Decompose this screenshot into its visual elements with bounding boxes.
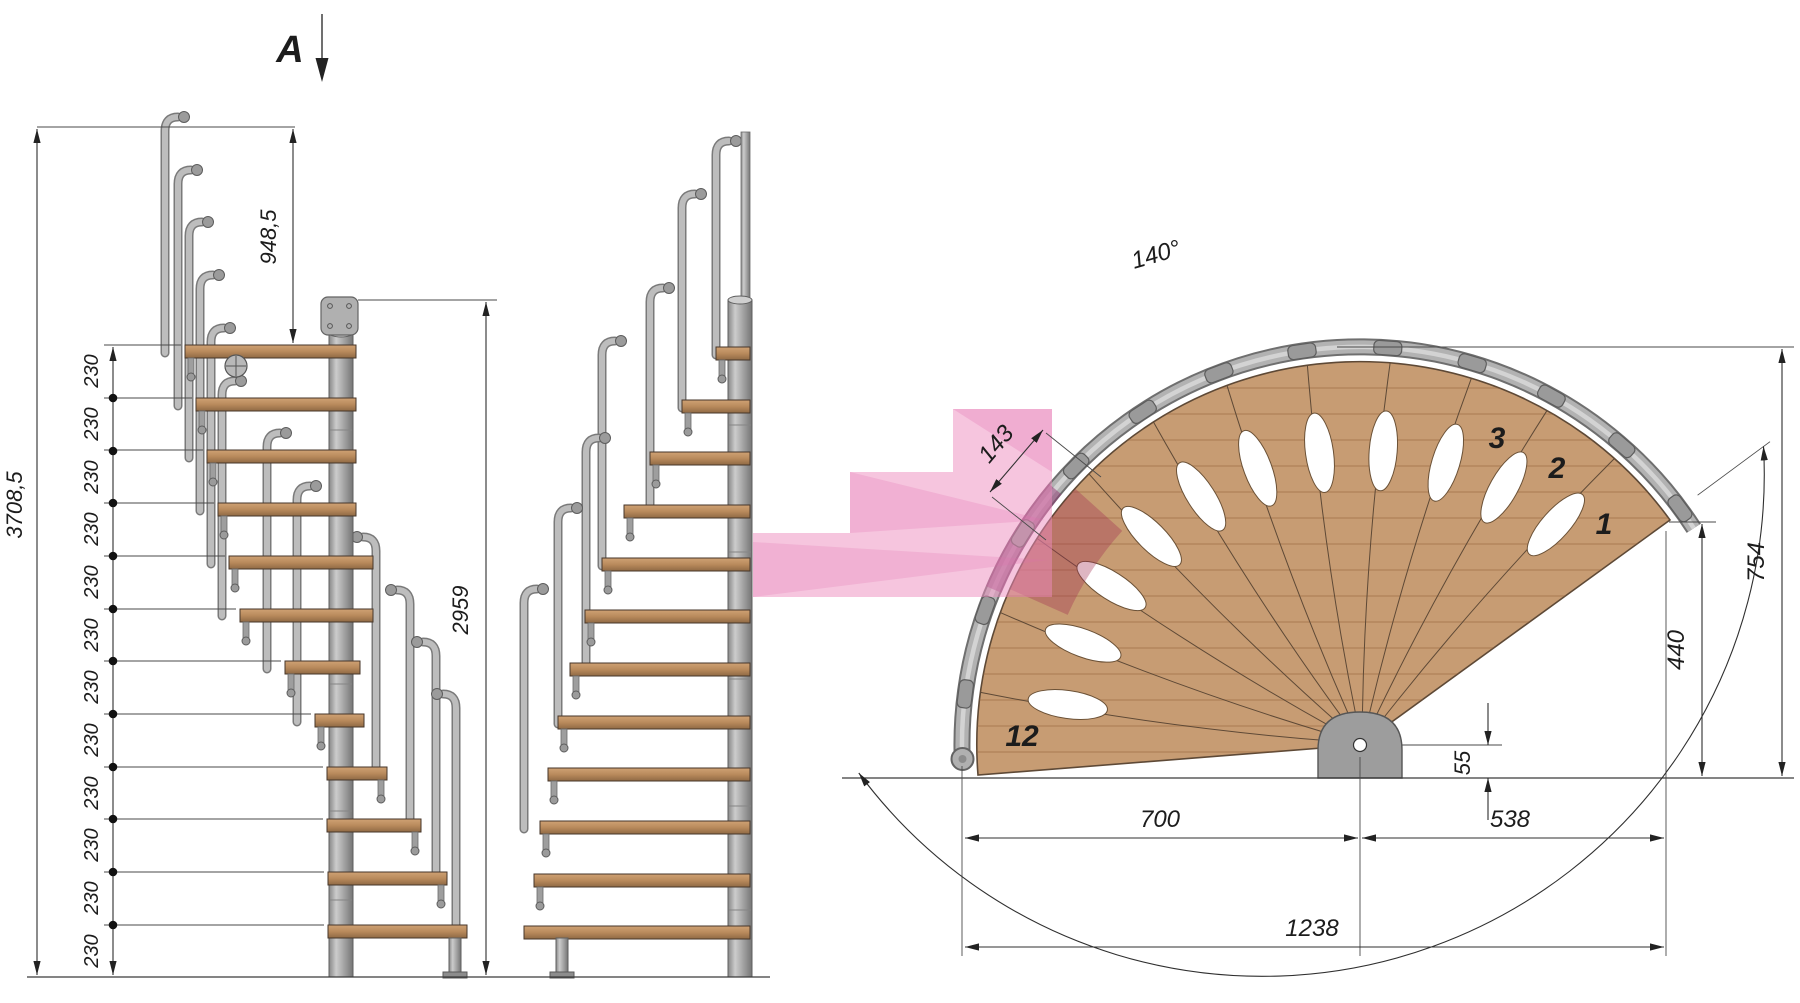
section-arrow-icon (316, 58, 329, 82)
dim-outer-radius: 754 (1743, 349, 1782, 776)
dim-label-700: 700 (1140, 806, 1181, 833)
tread-number-3: 3 (1489, 422, 1506, 455)
left-elevation-view (165, 112, 467, 979)
dim-label-230-1: 230 (81, 354, 103, 388)
dim-label-230-3: 230 (81, 460, 103, 494)
newel-extension-tube (741, 132, 750, 302)
dim-label-2959: 2959 (448, 586, 473, 636)
tread-number-1: 1 (1596, 508, 1613, 541)
dim-label-1238: 1238 (1285, 915, 1339, 942)
dim-total-height: 3708,5 (2, 129, 37, 975)
dim-label-230-5: 230 (81, 565, 103, 599)
dim-bottom-spans: 700 538 1238 (965, 806, 1664, 947)
dim-corner-height: 440 (1663, 524, 1702, 776)
dim-label-230-8: 230 (81, 723, 103, 757)
dim-label-948-5: 948,5 (256, 209, 281, 265)
dim-label-230-2: 230 (81, 407, 103, 441)
elevation-dimensions: 3708,5 948,5 230 230 230 230 230 230 230… (2, 127, 770, 977)
handrail-end-cap-center (959, 755, 967, 763)
wall-bracket (321, 297, 358, 335)
tread-number-12: 12 (1005, 720, 1039, 753)
front-elevation-view (524, 132, 752, 978)
dim-label-754: 754 (1743, 542, 1770, 582)
left-elevation-foot (443, 938, 467, 978)
dim-center-offset: 55 (1450, 703, 1488, 820)
dim-label-230-6: 230 (81, 618, 103, 652)
section-marker-a: A (275, 14, 328, 82)
dim-label-3708-5: 3708,5 (2, 471, 27, 539)
dim-label-230-4: 230 (81, 512, 103, 546)
rise-dimension-chain: 230 230 230 230 230 230 230 230 230 230 … (81, 347, 117, 975)
dim-label-230-9: 230 (81, 776, 103, 810)
dim-label-230-11: 230 (81, 881, 103, 915)
dim-label-538: 538 (1490, 806, 1531, 833)
tread-number-2: 2 (1548, 452, 1566, 485)
dim-label-230-7: 230 (81, 670, 103, 704)
section-marker-label: A (275, 29, 303, 71)
dim-label-55: 55 (1450, 750, 1475, 775)
dim-top-rise: 948,5 (256, 129, 293, 343)
drawing-sheet: 140° 143 754 440 55 700 538 (0, 0, 1800, 1003)
plan-view (952, 340, 1701, 778)
pole-center-point (1354, 739, 1367, 752)
dim-label-230-10: 230 (81, 828, 103, 862)
left-elevation-balusters (165, 112, 456, 933)
dim-label-440: 440 (1663, 629, 1690, 670)
dim-label-230-12: 230 (81, 934, 103, 968)
spiral-staircase-technical-drawing: 140° 143 754 440 55 700 538 (0, 0, 1800, 1003)
front-elevation-foot (550, 938, 574, 978)
dim-label-140deg: 140° (1128, 235, 1184, 275)
